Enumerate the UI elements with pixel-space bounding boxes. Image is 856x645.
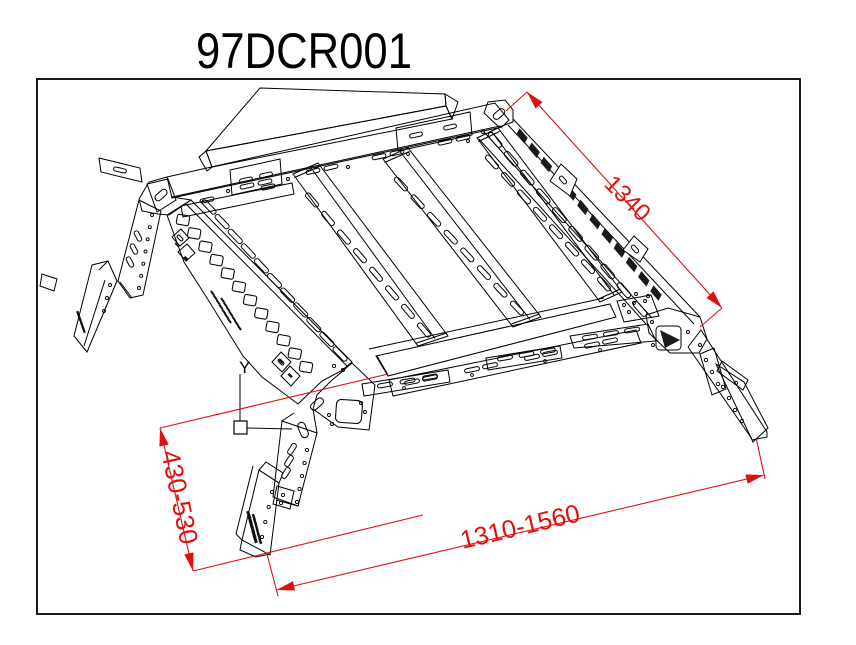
svg-text:Y: Y [239, 358, 250, 377]
svg-text:97DCR001: 97DCR001 [196, 23, 412, 79]
